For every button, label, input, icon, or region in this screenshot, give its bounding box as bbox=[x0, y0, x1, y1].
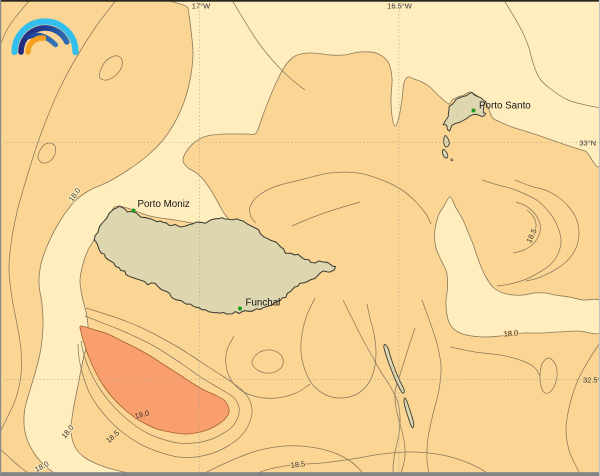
svg-text:32.5°N: 32.5°N bbox=[583, 375, 600, 384]
svg-text:Porto Santo: Porto Santo bbox=[479, 101, 531, 112]
svg-text:17°W: 17°W bbox=[192, 2, 211, 11]
svg-text:18.5: 18.5 bbox=[290, 459, 305, 469]
svg-text:18.0: 18.0 bbox=[503, 328, 518, 338]
svg-text:33°N: 33°N bbox=[579, 138, 596, 147]
svg-text:16.5°W: 16.5°W bbox=[387, 2, 413, 11]
svg-text:Funchal: Funchal bbox=[246, 298, 281, 309]
svg-text:Porto Moniz: Porto Moniz bbox=[138, 199, 190, 210]
